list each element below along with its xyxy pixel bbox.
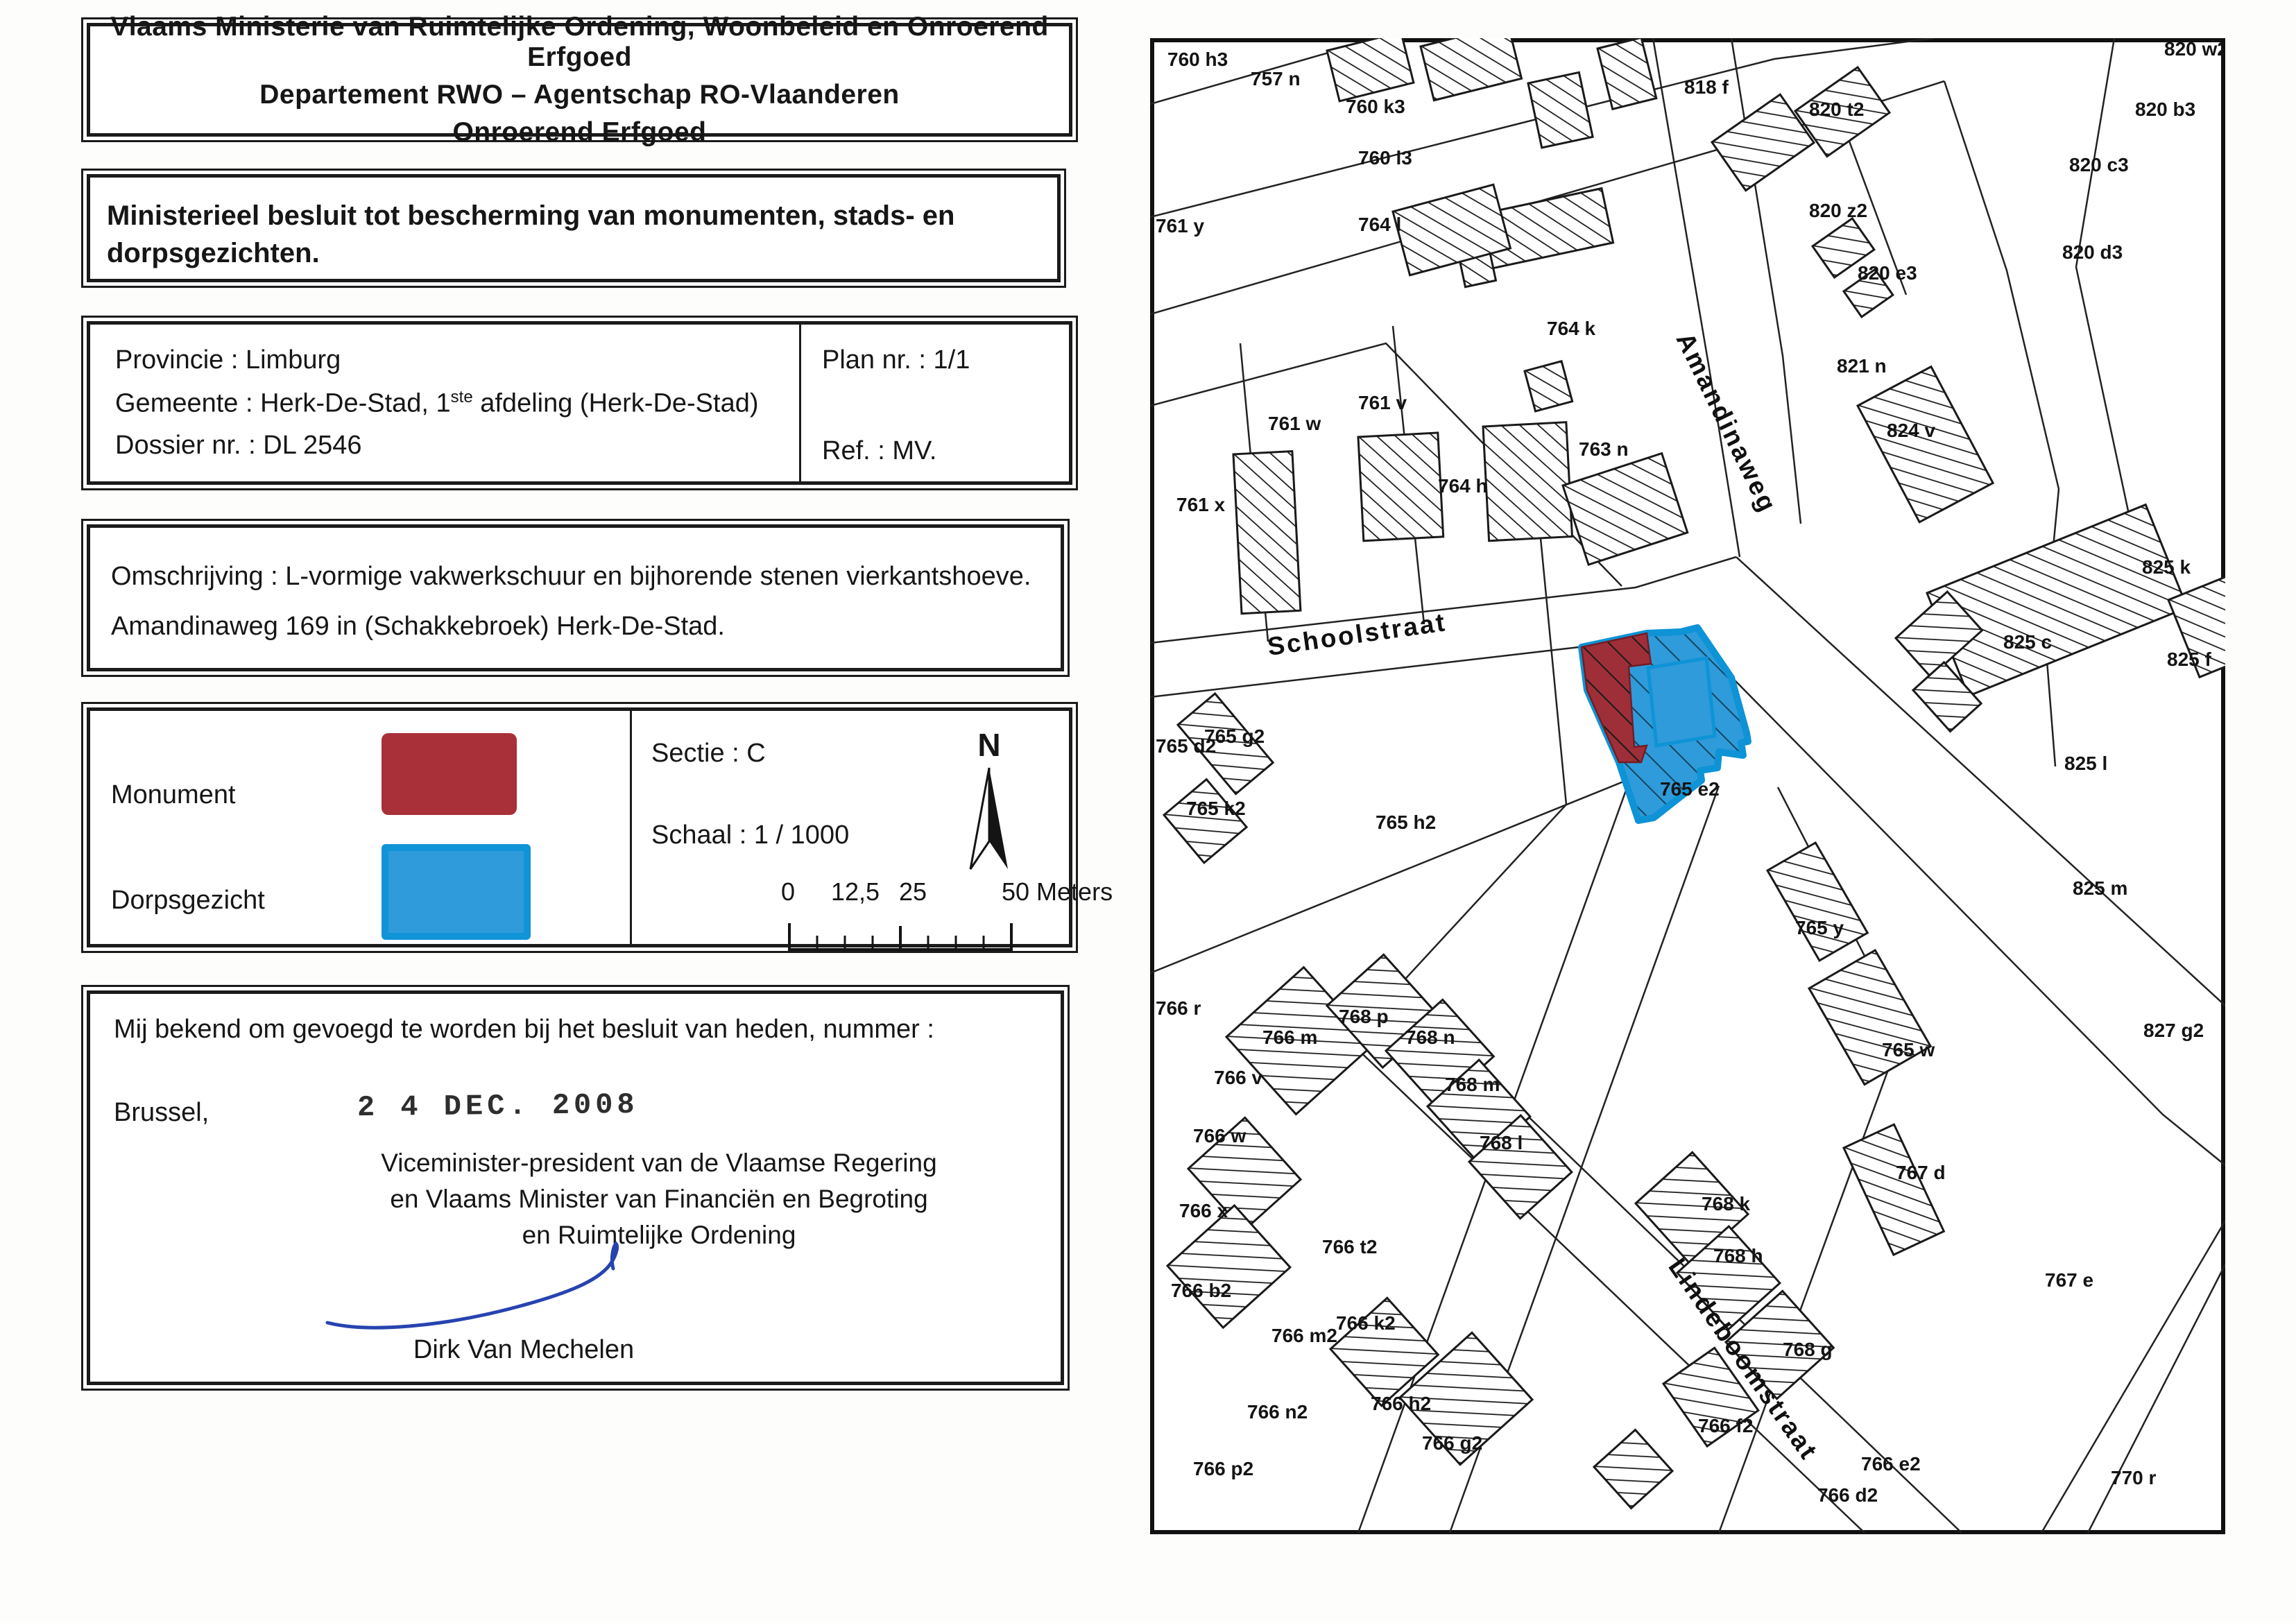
- parcel-label: 765 g2: [1204, 725, 1265, 747]
- parcel-label: 766 g2: [1422, 1432, 1482, 1454]
- parcel-label: 820 d3: [2062, 241, 2123, 263]
- provincie-row: Provincie : Limburg: [115, 345, 773, 375]
- parcel-label: 766 m: [1262, 1027, 1317, 1048]
- minister-title: Viceminister-president van de Vlaamse Re…: [250, 1145, 1068, 1253]
- parcel-label: 768 m: [1445, 1074, 1500, 1095]
- dorpsgezicht-swatch: [382, 844, 531, 940]
- parcel-label: 761 v: [1358, 392, 1407, 413]
- schaal-text: Schaal : 1 / 1000: [651, 821, 849, 850]
- ref-row: Ref. : MV.: [822, 436, 1048, 466]
- omschrijving-line2: Amandinaweg 169 in (Schakkebroek) Herk-D…: [111, 601, 1040, 651]
- parcel-label: 766 r: [1156, 997, 1201, 1019]
- parcel-label: 821 n: [1837, 355, 1887, 377]
- parcel-label: 824 v: [1887, 420, 1935, 441]
- description-box: Omschrijving : L-vormige vakwerkschuur e…: [81, 519, 1070, 677]
- decree-page: Vlaams Ministerie van Ruimtelijke Ordeni…: [0, 0, 2296, 1623]
- ministry-line3: Onroerend Erfgoed: [452, 117, 706, 148]
- dossier-row: Dossier nr. : DL 2546: [115, 431, 773, 461]
- parcel-label: 820 b3: [2135, 98, 2195, 120]
- parcel-label: 761 x: [1176, 494, 1225, 515]
- plan-row: Plan nr. : 1/1: [822, 345, 1048, 375]
- parcel-label: 765 w: [1882, 1039, 1935, 1060]
- parcel-label: 761 y: [1156, 215, 1204, 237]
- parcel-label: 766 f2: [1698, 1415, 1753, 1436]
- signature-icon: [319, 1238, 652, 1342]
- ministry-line2: Departement RWO – Agentschap RO-Vlaander…: [259, 80, 900, 110]
- dossier-value: DL 2546: [263, 431, 361, 460]
- parcel-label: 825 l: [2064, 753, 2107, 774]
- parcel-label: 764 l: [1358, 214, 1401, 235]
- parcel-label: 767 d: [1896, 1162, 1946, 1183]
- ministry-line1: Vlaams Ministerie van Ruimtelijke Ordeni…: [90, 12, 1069, 73]
- parcel-label: 825 k: [2142, 556, 2191, 578]
- parcel-label: 820 e3: [1858, 262, 1917, 284]
- parcel-label: 766 h2: [1371, 1393, 1431, 1414]
- parcel-label: 766 n2: [1247, 1401, 1308, 1423]
- parcel-label: 765 k2: [1186, 798, 1246, 819]
- cadastral-map-canvas: 760 h3757 n760 k3760 l3818 f820 t2820 b3…: [1150, 38, 2225, 1534]
- parcel-label: 766 e2: [1861, 1453, 1921, 1475]
- parcel-label: 766 x: [1179, 1200, 1228, 1221]
- monument-label: Monument: [111, 780, 236, 810]
- parcel-label: 768 g: [1783, 1339, 1833, 1360]
- parcel-label: 768 h: [1713, 1245, 1763, 1266]
- parcel-label: 825 f: [2167, 649, 2211, 670]
- signer-name: Dirk Van Mechelen: [298, 1335, 749, 1365]
- north-label: N: [958, 726, 1020, 764]
- parcel-label: 820 t2: [1809, 98, 1864, 120]
- parcel-label: 766 p2: [1193, 1458, 1253, 1479]
- scale-tick-12-5: 12,5: [831, 877, 880, 907]
- closing-box: Mij bekend om gevoegd te worden bij het …: [81, 985, 1070, 1391]
- parcel-label: 818 f: [1684, 76, 1729, 98]
- parcel-label: 766 m2: [1271, 1325, 1337, 1346]
- parcel-label: 766 v: [1214, 1067, 1262, 1088]
- parcel-label: 766 d2: [1817, 1484, 1878, 1506]
- parcel-label: 820 w2: [2164, 38, 2225, 60]
- parcel-label: 820 z2: [1809, 200, 1867, 221]
- parcel-label: 768 p: [1339, 1006, 1389, 1027]
- parcel-label: 766 k2: [1336, 1312, 1396, 1334]
- scale-bar: 0 12,5 25 50 Meters: [788, 883, 1017, 945]
- scale-bar-icon: [788, 919, 1038, 951]
- parcel-label: 767 e: [2045, 1269, 2093, 1291]
- closing-line: Mij bekend om gevoegd te worden bij het …: [114, 1015, 934, 1045]
- parcel-label: 820 c3: [2069, 154, 2129, 175]
- parcel-label: 760 h3: [1167, 49, 1228, 70]
- parcel-label: 764 h: [1438, 475, 1488, 497]
- scale-tick-50: 50 Meters: [1002, 877, 1113, 907]
- parcel-label: 770 r: [2111, 1467, 2156, 1488]
- scale-tick-0: 0: [781, 877, 795, 907]
- legend-box: Monument Dorpsgezicht Sectie : C Schaal …: [81, 702, 1078, 953]
- parcel-label: 825 c: [2003, 631, 2052, 653]
- parcel-label: 764 k: [1547, 318, 1595, 339]
- parcel-label: 825 m: [2073, 877, 2127, 899]
- parcel-label: 766 b2: [1171, 1280, 1231, 1301]
- title-box: Ministerieel besluit tot bescherming van…: [81, 169, 1066, 288]
- monument-swatch: [382, 733, 517, 815]
- header-box: Vlaams Ministerie van Ruimtelijke Ordeni…: [81, 17, 1078, 142]
- parcel-label: 760 l3: [1358, 147, 1412, 169]
- parcel-label: 768 n: [1405, 1027, 1455, 1048]
- parcel-label: 757 n: [1251, 68, 1301, 89]
- parcel-label: 766 t2: [1322, 1236, 1377, 1257]
- date-stamp: 2 4 DEC. 2008: [357, 1088, 639, 1124]
- ref-value: MV.: [892, 436, 936, 465]
- dorpsgezicht-label: Dorpsgezicht: [111, 886, 265, 916]
- decree-title: Ministerieel besluit tot bescherming van…: [90, 178, 1057, 291]
- parcel-label: 763 n: [1579, 438, 1629, 460]
- parcel-label: 765 h2: [1376, 811, 1436, 833]
- scale-tick-25: 25: [899, 877, 927, 907]
- parcel-label: 827 g2: [2143, 1020, 2204, 1041]
- parcel-label: 765 e2: [1660, 778, 1720, 800]
- parcel-label: 760 k3: [1346, 96, 1405, 117]
- parcel-label: 766 w: [1193, 1125, 1246, 1147]
- parcel-label: 768 k: [1702, 1193, 1750, 1214]
- parcel-label: 765 y: [1795, 917, 1844, 938]
- provincie-value: Limburg: [246, 345, 341, 375]
- plan-value: 1/1: [934, 345, 970, 375]
- parcel-label: 761 w: [1268, 413, 1321, 434]
- north-arrow: N: [958, 726, 1020, 886]
- omschrijving-line1: Omschrijving : L-vormige vakwerkschuur e…: [111, 551, 1040, 601]
- gemeente-row: Gemeente : Herk-De-Stad, 1ste afdeling (…: [115, 388, 773, 419]
- cadastral-map: 760 h3757 n760 k3760 l3818 f820 t2820 b3…: [1150, 38, 2225, 1534]
- info-box: Provincie : Limburg Gemeente : Herk-De-S…: [81, 316, 1078, 490]
- north-arrow-icon: [958, 764, 1020, 875]
- place-label: Brussel,: [114, 1098, 209, 1128]
- parcel-label: 768 l: [1480, 1132, 1523, 1153]
- sectie-text: Sectie : C: [651, 739, 766, 768]
